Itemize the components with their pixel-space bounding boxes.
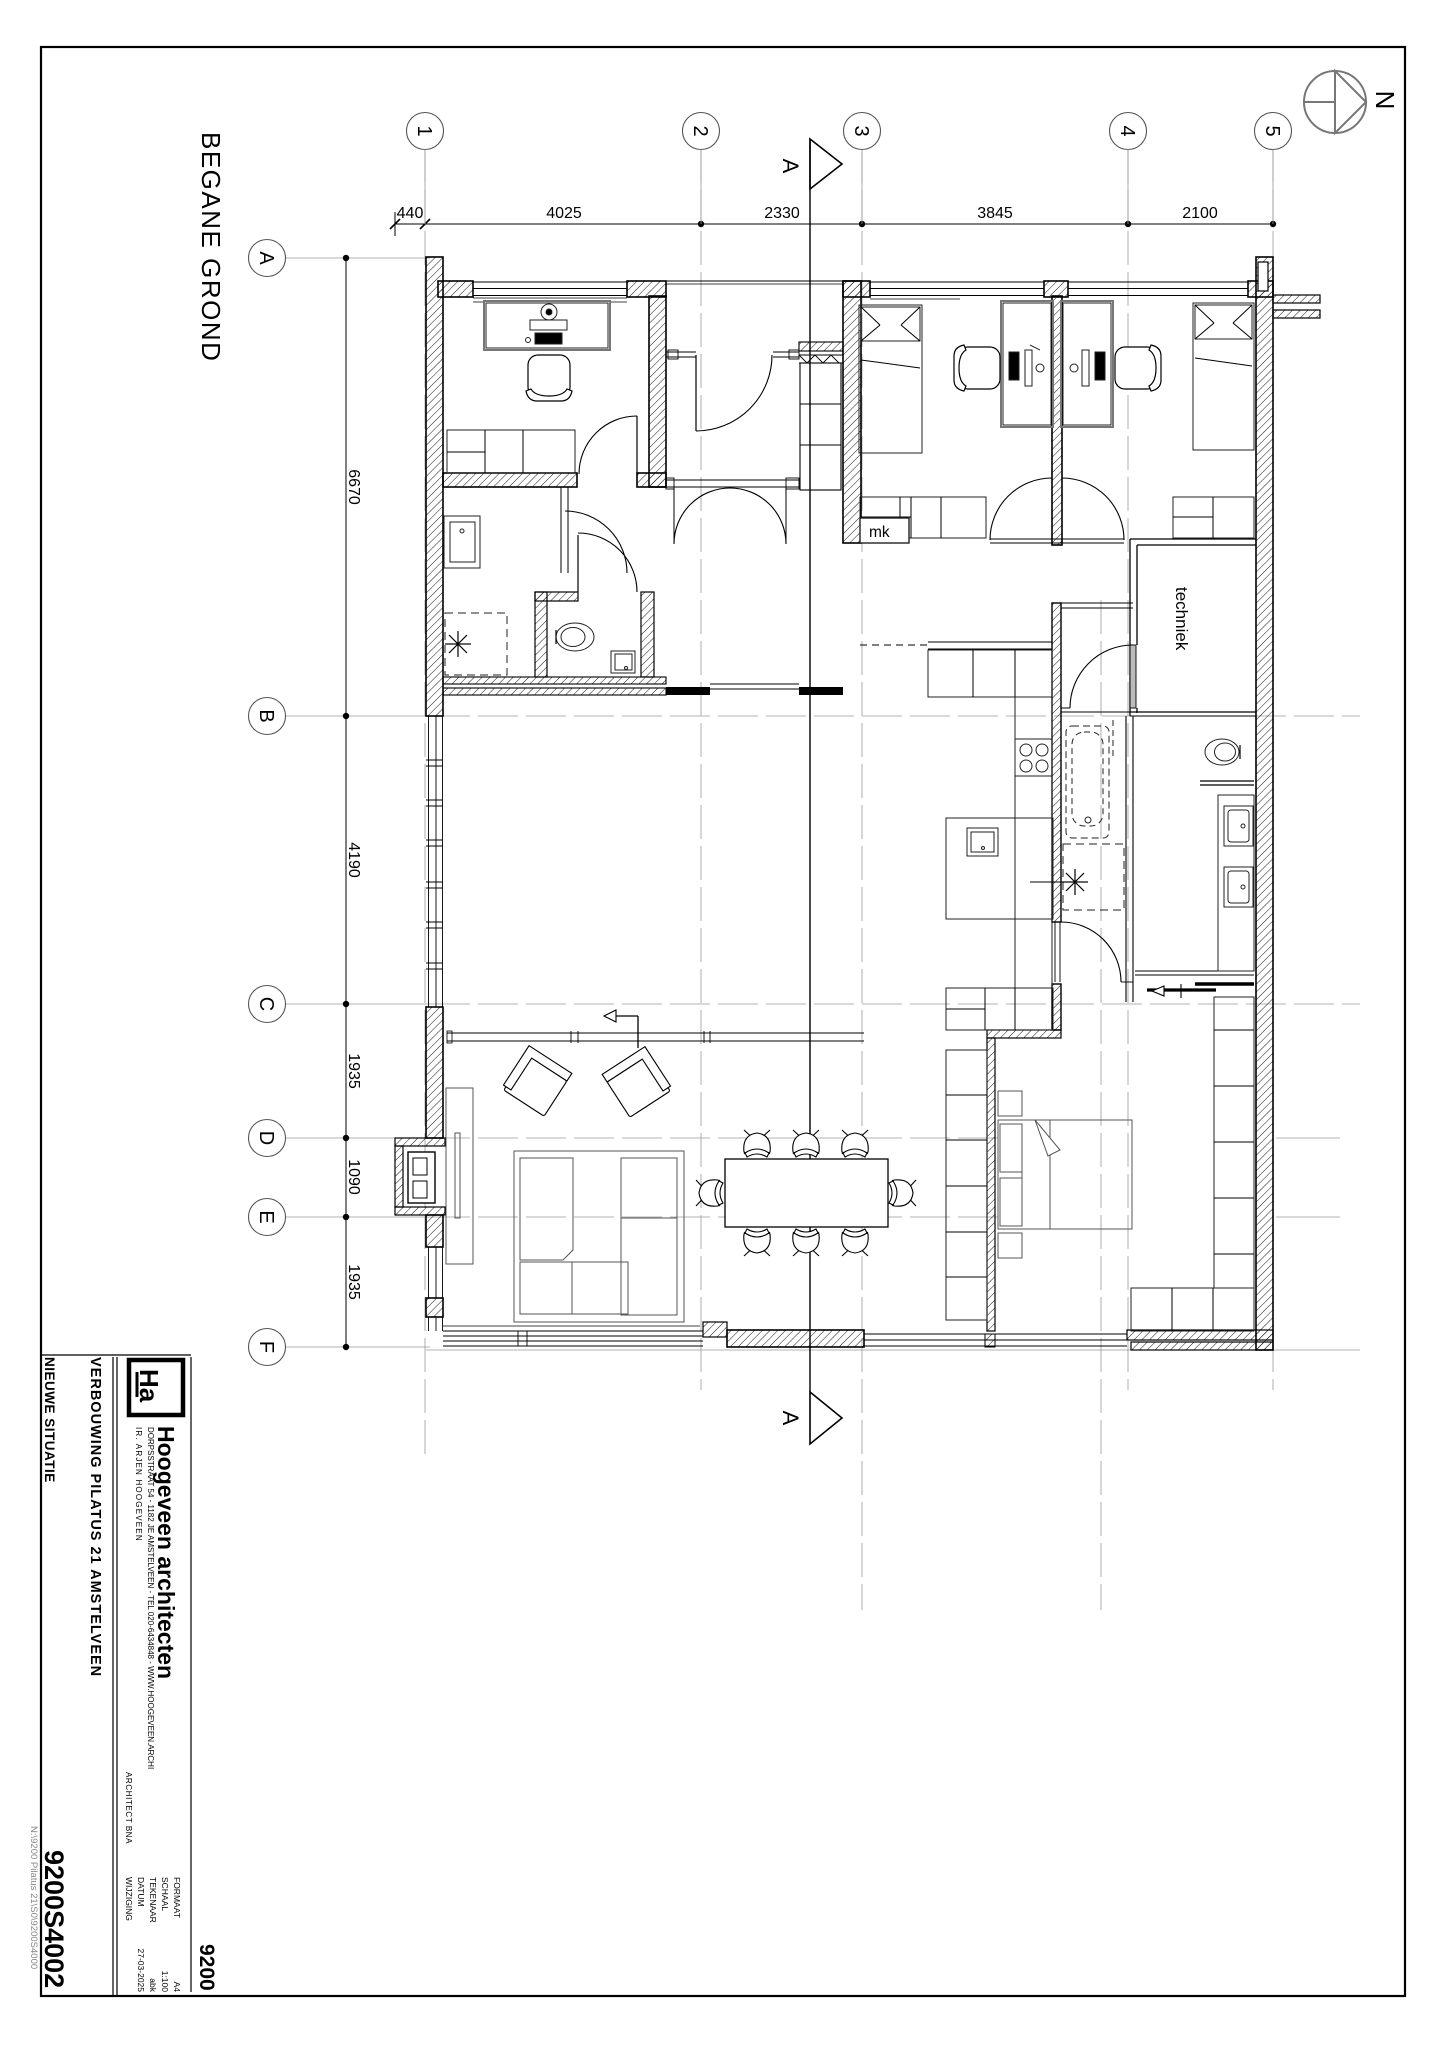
svg-text:1090: 1090 bbox=[345, 1159, 362, 1195]
svg-text:DORPSSTRAAT 54 - 1182 JE AMSTE: DORPSSTRAAT 54 - 1182 JE AMSTELVEEN - TE… bbox=[146, 1427, 155, 1769]
svg-text:440: 440 bbox=[397, 205, 424, 222]
svg-text:E: E bbox=[255, 1210, 277, 1223]
svg-text:4: 4 bbox=[1116, 125, 1138, 136]
svg-text:WIJZIGING: WIJZIGING bbox=[124, 1877, 134, 1921]
svg-text:9200S4002: 9200S4002 bbox=[39, 1850, 69, 1988]
svg-text:VERBOUWING PILATUS 21 AMSTELVE: VERBOUWING PILATUS 21 AMSTELVEEN bbox=[87, 1357, 103, 1677]
svg-text:9200: 9200 bbox=[195, 1944, 218, 1991]
svg-text:mk: mk bbox=[869, 524, 890, 541]
svg-text:FORMAAT: FORMAAT bbox=[172, 1877, 182, 1918]
svg-text:F: F bbox=[255, 1341, 277, 1353]
svg-text:1935: 1935 bbox=[345, 1053, 362, 1089]
svg-text:D: D bbox=[255, 1131, 277, 1145]
svg-text:techniek: techniek bbox=[1172, 587, 1191, 651]
svg-text:abk: abk bbox=[148, 1978, 158, 1992]
svg-text:2: 2 bbox=[689, 125, 711, 136]
svg-text:SCHAAL: SCHAAL bbox=[160, 1877, 170, 1911]
svg-text:Hoogeveen architecten: Hoogeveen architecten bbox=[153, 1426, 179, 1679]
svg-text:NIEUWE SITUATIE: NIEUWE SITUATIE bbox=[42, 1357, 57, 1483]
svg-text:4025: 4025 bbox=[546, 205, 582, 222]
svg-text:A4: A4 bbox=[172, 1982, 182, 1993]
svg-text:5: 5 bbox=[1261, 125, 1283, 136]
svg-text:1: 1 bbox=[413, 125, 435, 136]
svg-text:6670: 6670 bbox=[345, 469, 362, 505]
svg-text:C: C bbox=[255, 997, 277, 1011]
svg-text:2330: 2330 bbox=[764, 205, 800, 222]
svg-text:BEGANE GROND: BEGANE GROND bbox=[196, 132, 226, 362]
svg-text:A: A bbox=[255, 251, 277, 265]
svg-text:A: A bbox=[778, 159, 803, 174]
svg-text:IR. ARJEN HOOGEVEEN: IR. ARJEN HOOGEVEEN bbox=[134, 1427, 143, 1542]
svg-text:3845: 3845 bbox=[977, 205, 1013, 222]
svg-text:4190: 4190 bbox=[345, 842, 362, 878]
svg-text:N:\9200 Pilatus 21\S0\9200S400: N:\9200 Pilatus 21\S0\9200S4000 bbox=[28, 1826, 39, 1969]
svg-text:ARCHITECT BNA: ARCHITECT BNA bbox=[124, 1772, 133, 1844]
svg-text:N: N bbox=[1370, 91, 1400, 110]
svg-text:A: A bbox=[778, 1411, 803, 1426]
svg-text:2100: 2100 bbox=[1182, 205, 1218, 222]
svg-text:1:100: 1:100 bbox=[160, 1971, 170, 1993]
svg-text:TEKENAAR: TEKENAAR bbox=[148, 1877, 158, 1923]
svg-text:1935: 1935 bbox=[345, 1264, 362, 1300]
svg-text:B: B bbox=[255, 709, 277, 722]
svg-text:27-03-2025: 27-03-2025 bbox=[136, 1949, 146, 1993]
svg-text:DATUM: DATUM bbox=[136, 1877, 146, 1907]
svg-text:3: 3 bbox=[850, 125, 872, 136]
